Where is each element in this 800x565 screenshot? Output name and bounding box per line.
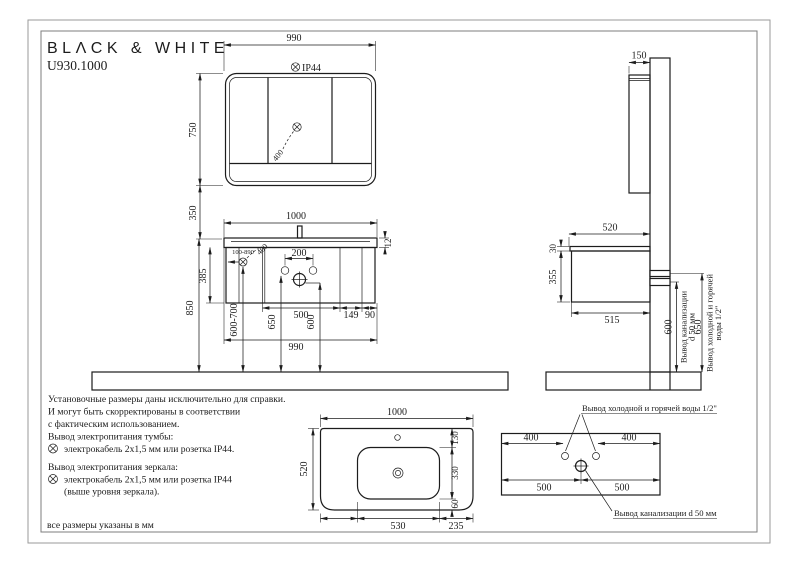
countertop-side <box>570 247 650 252</box>
dim-mirror-cable-length: 400 <box>271 148 285 163</box>
faucet-hole-top <box>395 435 401 441</box>
dim-vanity-bottom-width: 990 <box>289 342 304 353</box>
dim-faucet-holes: 200 <box>292 248 307 259</box>
side-water-label-2: воды 1/2" <box>713 306 723 341</box>
dim-side-water-height: 650 <box>693 320 704 335</box>
sink-right-dimensions: 130 330 60 <box>440 429 461 517</box>
mirror-ip44-outlet-symbol: IP44 <box>291 63 321 74</box>
dim-outlet-height: 600-700 <box>229 303 240 336</box>
dim-seg-149: 149 <box>344 310 359 321</box>
water-outlet-hole-left <box>562 453 569 460</box>
dim-sink-depth: 520 <box>299 462 310 477</box>
mirror-cabinet-side <box>629 75 650 193</box>
countertop-thickness-dimension: 12 <box>379 232 393 255</box>
mirror-door-dividers <box>230 78 372 164</box>
dim-basin-right: 235 <box>449 521 464 532</box>
note-line-7: электрокабель 2х1,5 мм или розетка IP44 <box>64 475 232 486</box>
dim-seg-90: 90 <box>365 310 375 321</box>
dim-vanity-cable-length: 400 <box>255 242 270 257</box>
dim-water-height: 650 <box>267 315 278 330</box>
water-leader-right <box>582 415 596 452</box>
side-countertop-thickness-dimension: 30 <box>548 240 571 258</box>
outlet-symbol-mirror-note <box>49 475 58 484</box>
vanity-electrical-outlet-symbol: 100-890 400 600-700 <box>228 242 270 372</box>
dim-sink-width: 1000 <box>387 407 407 418</box>
cabinet-height-dimension: 385 <box>198 248 224 304</box>
drain-pipe-side <box>650 279 670 286</box>
dim-wall-500-right: 500 <box>615 483 630 494</box>
dim-floor-height: 850 <box>185 301 196 316</box>
mirror-width-dimension: 990 <box>224 33 376 71</box>
model-number: U930.1000 <box>47 58 108 73</box>
floor-to-top-dimension: 850 <box>185 239 199 372</box>
dim-gap: 350 <box>188 206 199 221</box>
sink-depth-dimension: 520 <box>299 429 319 511</box>
dim-sink-front: 130 <box>450 431 460 445</box>
note-line-4: Вывод электропитания тумбы: <box>48 432 173 443</box>
dim-outlet-range: 100-890 <box>232 249 254 256</box>
dim-sink-back: 60 <box>450 499 460 509</box>
vanity-front-view: 1000 12 385 100-8 <box>92 211 508 390</box>
note-line-5: электрокабель 2х1,5 мм или розетка IP44. <box>64 444 234 455</box>
water-height-dimension: 650 <box>267 276 281 372</box>
dim-side-ct: 30 <box>548 244 558 254</box>
washbasin-top-view: 1000 520 130 330 60 <box>299 407 473 532</box>
installation-notes: Установочные размеры даны исключительно … <box>48 394 285 498</box>
side-cabinet-height-dimension: 355 <box>548 251 570 302</box>
mirror-height-dimension: 750 <box>188 74 223 186</box>
note-line-8: (выше уровня зеркала). <box>64 487 159 498</box>
water-leader-left <box>566 415 581 452</box>
countertop-front <box>224 238 377 248</box>
side-top-width-dimension: 520 <box>569 223 650 247</box>
ip44-label: IP44 <box>302 63 321 74</box>
water-outlet-hole-right <box>593 453 600 460</box>
dim-mirror-width: 990 <box>287 33 302 44</box>
dim-countertop-thickness: 12 <box>383 239 393 248</box>
faucet-front <box>298 226 303 238</box>
dim-seg-500: 500 <box>294 310 309 321</box>
drain-leader <box>586 471 613 512</box>
mirror-electrical-outlet-symbol: 400 <box>271 123 301 163</box>
note-line-2: И могут быть скорректированы в соответст… <box>48 407 240 418</box>
floor-slab-side <box>546 372 701 390</box>
technical-drawing-sheet: BLΛCK & WHITE U930.1000 990 IP44 400 <box>0 0 800 565</box>
dim-basin-width: 530 <box>391 521 406 532</box>
faucet-holes-dimension: 200 <box>285 248 313 266</box>
dim-side-top: 520 <box>603 223 618 234</box>
wall-top-dimensions: 400 400 <box>502 433 661 444</box>
dim-wall-400-left: 400 <box>524 433 539 444</box>
floor-slab-front <box>92 372 508 390</box>
dim-vanity-width: 1000 <box>286 211 306 222</box>
water-outlet-label: Вывод холодной и горячей воды 1/2" <box>582 403 717 413</box>
dim-sink-middle: 330 <box>450 466 460 480</box>
mirror-to-vanity-gap-dimension: 350 <box>188 186 222 240</box>
outlet-symbol-vanity-note <box>49 444 58 453</box>
note-line-6: Вывод электропитания зеркала: <box>48 462 178 473</box>
basin-bowl <box>358 448 440 500</box>
brand-logo: BLΛCK & WHITE <box>47 40 229 57</box>
water-pipe-side <box>650 271 670 277</box>
drain-hole-top <box>393 468 403 478</box>
note-line-1: Установочные размеры даны исключительно … <box>48 394 285 405</box>
dim-wall-500-left: 500 <box>537 483 552 494</box>
footer-units-note: все размеры указаны в мм <box>47 520 154 531</box>
dim-side-drain-height: 600 <box>664 320 675 335</box>
side-view: 150 520 30 355 515 <box>546 51 723 391</box>
dim-wall-400-right: 400 <box>622 433 637 444</box>
side-bottom-width-dimension: 515 <box>572 302 651 326</box>
drain-outlet-label: Вывод канализации d 50 мм <box>614 508 717 518</box>
note-line-3: с фактическим использованием. <box>48 419 179 430</box>
dim-side-bottom: 515 <box>605 315 620 326</box>
dim-side-height: 355 <box>548 270 559 285</box>
dim-cabinet-height: 385 <box>198 269 209 284</box>
vanity-cabinet-side <box>572 251 651 302</box>
drain-height-dimension: 600 <box>306 283 321 372</box>
wall-outlets-view: Вывод холодной и горячей воды 1/2" 400 4… <box>502 403 718 519</box>
sink-width-dimension: 1000 <box>321 407 474 427</box>
mirror-depth-dimension: 150 <box>629 51 650 74</box>
dim-mirror-depth: 150 <box>632 51 647 62</box>
wall-bottom-dimensions: 500 500 <box>502 474 661 494</box>
drawing-canvas: BLΛCK & WHITE U930.1000 990 IP44 400 <box>0 0 800 565</box>
dim-mirror-height: 750 <box>188 123 199 138</box>
water-connection-holes <box>281 267 317 288</box>
